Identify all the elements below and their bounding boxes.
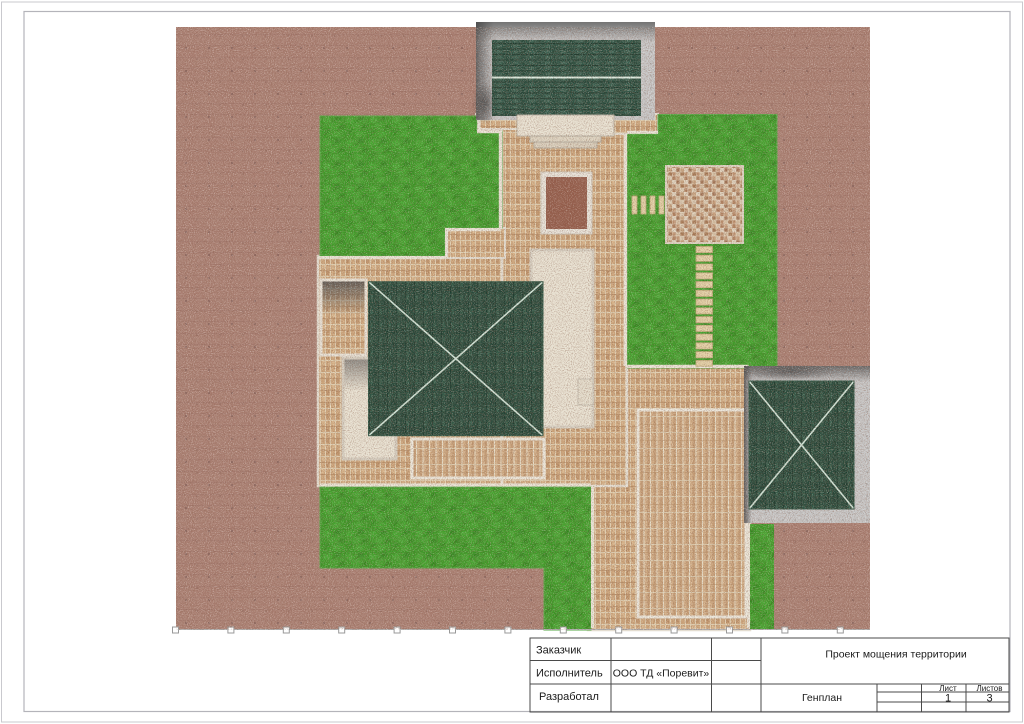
svg-text:Генплан: Генплан [802, 692, 842, 704]
svg-text:1: 1 [945, 693, 951, 705]
svg-text:ООО ТД «Поревит»: ООО ТД «Поревит» [613, 668, 710, 680]
svg-text:Заказчик: Заказчик [536, 645, 581, 657]
svg-text:Исполнитель: Исполнитель [536, 668, 603, 680]
svg-text:Проект мощения территории: Проект мощения территории [825, 649, 967, 661]
svg-text:3: 3 [986, 693, 992, 705]
svg-text:Разработал: Разработал [539, 691, 599, 703]
